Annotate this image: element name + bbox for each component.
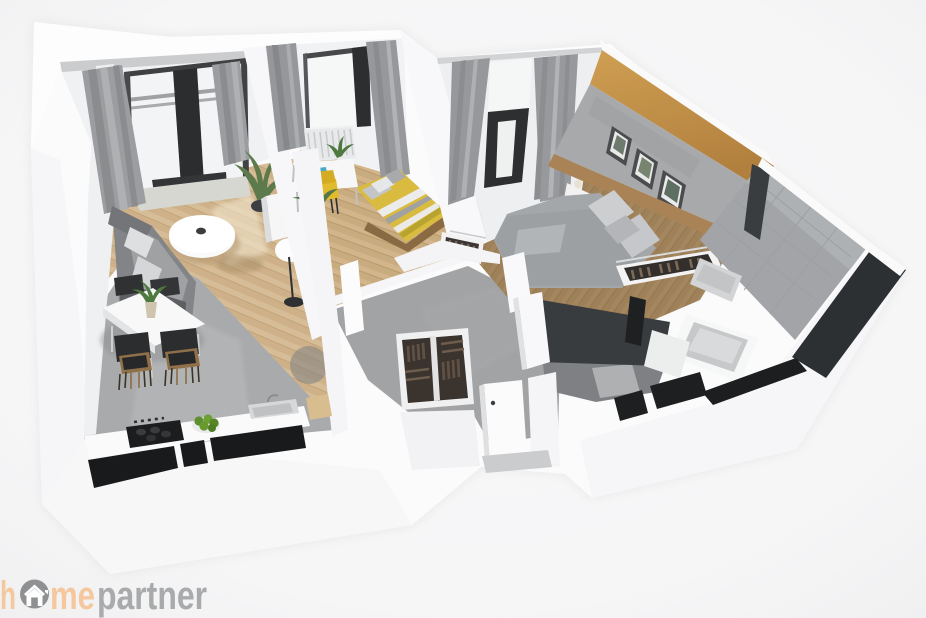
svg-text:partner: partner bbox=[97, 574, 207, 618]
svg-text:h: h bbox=[0, 574, 16, 618]
svg-text:me: me bbox=[50, 574, 95, 618]
